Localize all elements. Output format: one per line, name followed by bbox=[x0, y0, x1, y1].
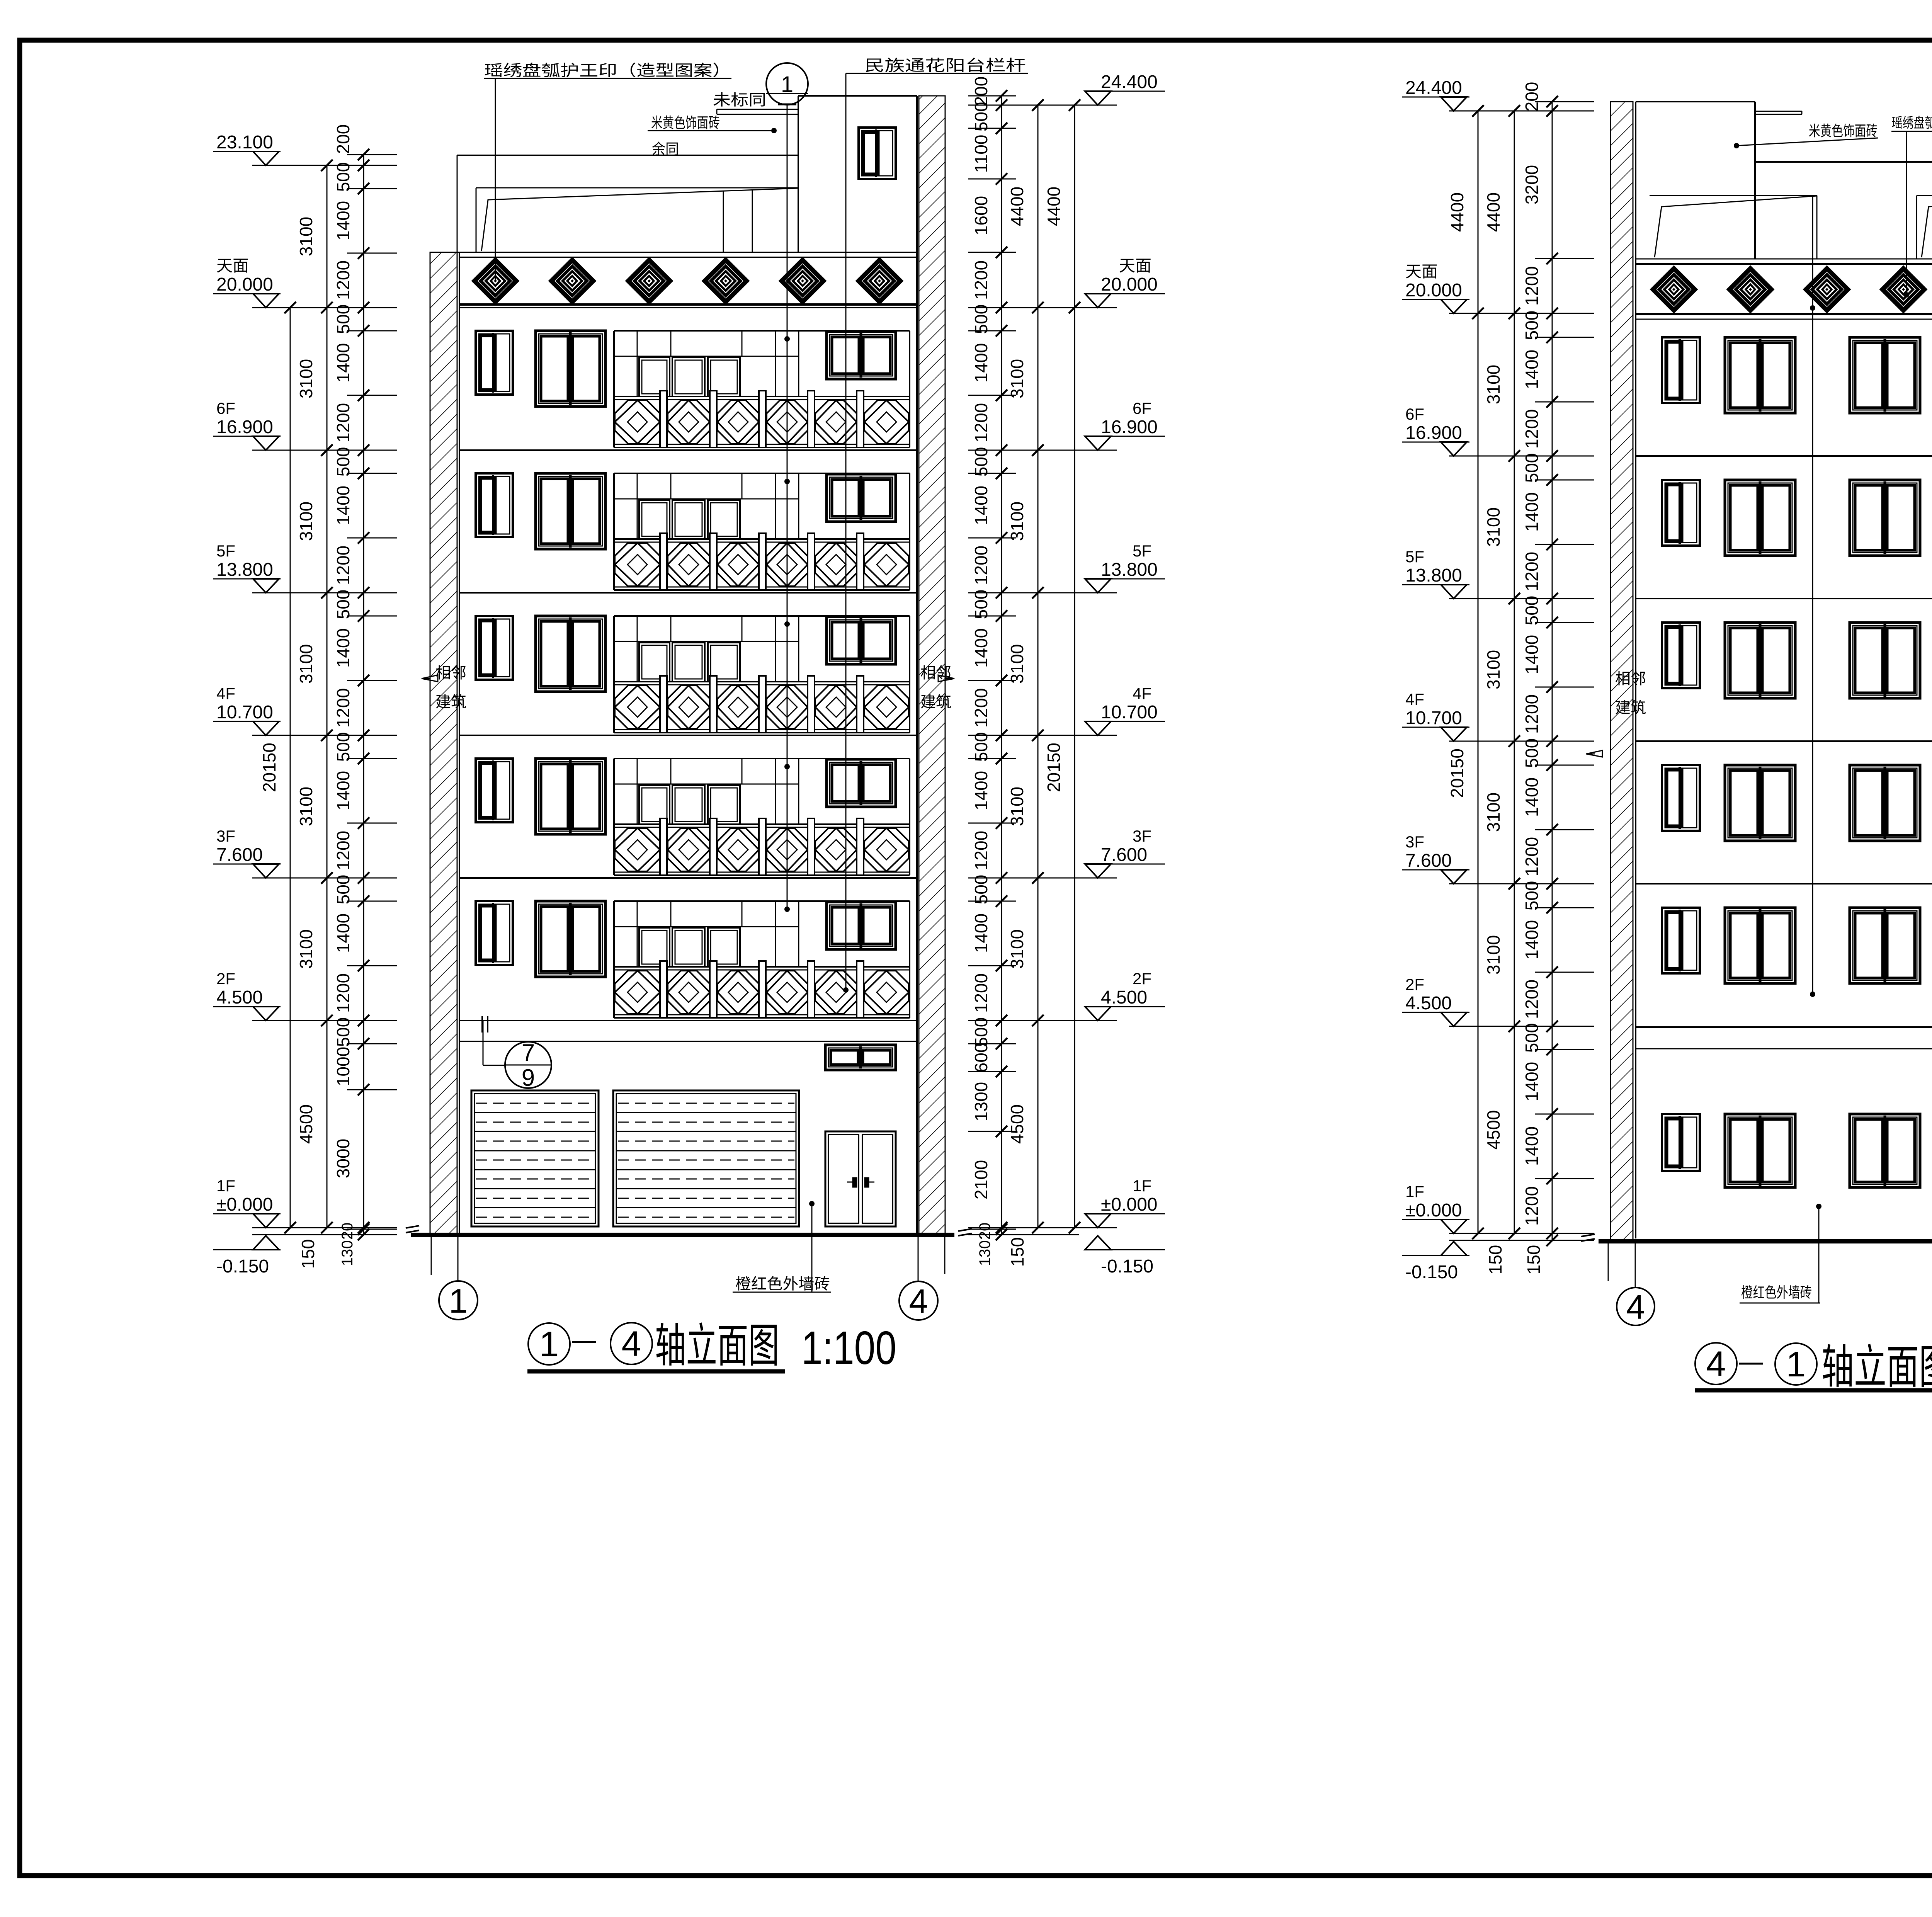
svg-text:4500: 4500 bbox=[1007, 1104, 1027, 1144]
svg-text:20.000: 20.000 bbox=[216, 274, 273, 295]
svg-text:1300: 1300 bbox=[971, 1082, 991, 1121]
svg-text:1200: 1200 bbox=[1522, 694, 1542, 734]
svg-text:1200: 1200 bbox=[1522, 409, 1542, 449]
svg-text:天面: 天面 bbox=[216, 257, 249, 275]
svg-text:150: 150 bbox=[298, 1239, 318, 1269]
svg-text:1400: 1400 bbox=[971, 628, 991, 668]
svg-text:130: 130 bbox=[339, 1240, 356, 1266]
svg-text:13.800: 13.800 bbox=[1101, 560, 1158, 580]
svg-text:1400: 1400 bbox=[1522, 350, 1542, 389]
svg-text:±0.000: ±0.000 bbox=[1405, 1200, 1462, 1221]
svg-text:±0.000: ±0.000 bbox=[216, 1194, 273, 1215]
svg-text:-0.150: -0.150 bbox=[1101, 1256, 1153, 1277]
svg-text:4: 4 bbox=[1626, 1288, 1645, 1326]
svg-text:500: 500 bbox=[971, 875, 991, 905]
svg-text:6F: 6F bbox=[216, 399, 235, 417]
svg-text:2F: 2F bbox=[216, 970, 235, 988]
svg-text:500: 500 bbox=[971, 732, 991, 762]
svg-text:橙红色外墙砖: 橙红色外墙砖 bbox=[1741, 1285, 1812, 1301]
svg-text:3100: 3100 bbox=[296, 644, 316, 684]
svg-text:米黄色饰面砖: 米黄色饰面砖 bbox=[651, 115, 720, 131]
svg-text:4.500: 4.500 bbox=[1101, 987, 1147, 1008]
svg-text:1200: 1200 bbox=[1522, 1186, 1542, 1226]
svg-text:1400: 1400 bbox=[333, 913, 353, 953]
svg-text:3100: 3100 bbox=[296, 929, 316, 969]
svg-text:2100: 2100 bbox=[971, 1160, 991, 1199]
svg-text:1200: 1200 bbox=[1522, 266, 1542, 306]
svg-text:建筑: 建筑 bbox=[1615, 699, 1646, 716]
svg-text:500: 500 bbox=[333, 447, 353, 477]
svg-text:500: 500 bbox=[333, 304, 353, 334]
svg-text:500: 500 bbox=[1522, 1023, 1542, 1053]
svg-text:200: 200 bbox=[333, 124, 353, 154]
svg-text:1400: 1400 bbox=[1522, 920, 1542, 959]
svg-text:3100: 3100 bbox=[1483, 935, 1503, 975]
svg-text:1200: 1200 bbox=[333, 688, 353, 728]
svg-text:4400: 4400 bbox=[1044, 187, 1064, 226]
svg-text:1: 1 bbox=[539, 1325, 559, 1364]
svg-text:3100: 3100 bbox=[1007, 929, 1027, 969]
svg-text:4.500: 4.500 bbox=[1405, 993, 1452, 1014]
svg-text:1: 1 bbox=[1786, 1345, 1806, 1384]
svg-text:3100: 3100 bbox=[1007, 787, 1027, 826]
svg-text:1400: 1400 bbox=[333, 343, 353, 383]
svg-text:1400: 1400 bbox=[971, 343, 991, 383]
svg-text:4500: 4500 bbox=[1483, 1110, 1503, 1150]
svg-text:4: 4 bbox=[1706, 1344, 1726, 1384]
svg-text:200: 200 bbox=[971, 77, 991, 106]
svg-text:1200: 1200 bbox=[333, 403, 353, 442]
svg-text:1F: 1F bbox=[1133, 1177, 1151, 1195]
svg-text:瑶绣盘瓠护王印（造型图案）: 瑶绣盘瓠护王印（造型图案） bbox=[484, 62, 731, 79]
svg-text:米黄色饰面砖: 米黄色饰面砖 bbox=[1809, 123, 1878, 139]
svg-text:3200: 3200 bbox=[1522, 165, 1542, 204]
svg-text:1F: 1F bbox=[216, 1177, 235, 1195]
svg-text:24.400: 24.400 bbox=[1101, 72, 1158, 92]
svg-text:200: 200 bbox=[1522, 82, 1542, 112]
svg-text:16.900: 16.900 bbox=[1101, 417, 1158, 437]
svg-text:1400: 1400 bbox=[1522, 1062, 1542, 1101]
svg-text:1400: 1400 bbox=[971, 913, 991, 953]
svg-text:3100: 3100 bbox=[1483, 650, 1503, 689]
svg-text:7.600: 7.600 bbox=[1405, 850, 1452, 871]
svg-text:500: 500 bbox=[1522, 596, 1542, 626]
svg-text:7.600: 7.600 bbox=[1101, 845, 1147, 865]
svg-text:20: 20 bbox=[339, 1223, 356, 1240]
svg-text:±0.000: ±0.000 bbox=[1101, 1194, 1157, 1215]
svg-text:3100: 3100 bbox=[296, 359, 316, 398]
svg-text:1100: 1100 bbox=[971, 135, 991, 173]
svg-text:13.800: 13.800 bbox=[1405, 565, 1462, 586]
svg-text:6F: 6F bbox=[1405, 405, 1424, 423]
svg-text:1200: 1200 bbox=[971, 973, 991, 1013]
svg-text:16.900: 16.900 bbox=[1405, 423, 1462, 443]
svg-text:3F: 3F bbox=[216, 827, 235, 845]
svg-text:3100: 3100 bbox=[1483, 365, 1503, 404]
svg-text:3F: 3F bbox=[1133, 827, 1151, 845]
svg-text:1F: 1F bbox=[1405, 1182, 1424, 1201]
svg-text:5F: 5F bbox=[1405, 548, 1424, 566]
svg-text:4400: 4400 bbox=[1483, 192, 1503, 232]
svg-text:3100: 3100 bbox=[1483, 507, 1503, 547]
svg-text:民族通花阳台栏杆: 民族通花阳台栏杆 bbox=[864, 57, 1026, 74]
svg-text:1200: 1200 bbox=[971, 546, 991, 585]
svg-text:500: 500 bbox=[333, 162, 353, 192]
svg-text:1400: 1400 bbox=[333, 628, 353, 668]
svg-text:1400: 1400 bbox=[333, 486, 353, 525]
svg-text:相邻: 相邻 bbox=[435, 665, 466, 682]
svg-text:3100: 3100 bbox=[1007, 359, 1027, 398]
svg-text:余同: 余同 bbox=[652, 141, 679, 158]
svg-text:5F: 5F bbox=[216, 542, 235, 560]
svg-text:4500: 4500 bbox=[296, 1104, 316, 1144]
svg-text:5F: 5F bbox=[1133, 542, 1151, 560]
svg-text:20: 20 bbox=[976, 1223, 993, 1240]
svg-text:1200: 1200 bbox=[333, 546, 353, 585]
svg-text:1400: 1400 bbox=[333, 201, 353, 240]
svg-text:未标同: 未标同 bbox=[713, 92, 766, 109]
svg-text:1: 1 bbox=[449, 1282, 468, 1320]
svg-text:4: 4 bbox=[909, 1282, 928, 1320]
svg-text:橙红色外墙砖: 橙红色外墙砖 bbox=[735, 1276, 830, 1293]
svg-text:6F: 6F bbox=[1133, 399, 1151, 417]
svg-text:1200: 1200 bbox=[333, 973, 353, 1013]
svg-text:相邻: 相邻 bbox=[1615, 670, 1646, 687]
svg-text:1400: 1400 bbox=[971, 486, 991, 525]
svg-text:500: 500 bbox=[1522, 311, 1542, 340]
svg-text:3100: 3100 bbox=[1483, 793, 1503, 832]
svg-text:500: 500 bbox=[971, 1017, 991, 1047]
svg-text:150: 150 bbox=[1485, 1245, 1505, 1275]
svg-text:1:100: 1:100 bbox=[801, 1322, 896, 1374]
svg-text:500: 500 bbox=[971, 590, 991, 619]
svg-text:500: 500 bbox=[971, 304, 991, 334]
svg-text:4: 4 bbox=[621, 1324, 641, 1364]
svg-text:4400: 4400 bbox=[1007, 187, 1027, 226]
svg-text:10.700: 10.700 bbox=[216, 702, 273, 723]
svg-text:20.000: 20.000 bbox=[1405, 280, 1462, 301]
svg-text:4F: 4F bbox=[1133, 684, 1151, 703]
svg-text:1: 1 bbox=[781, 72, 793, 97]
svg-text:-0.150: -0.150 bbox=[1405, 1262, 1458, 1283]
svg-text:1200: 1200 bbox=[971, 688, 991, 728]
svg-text:600: 600 bbox=[971, 1043, 991, 1073]
svg-text:500: 500 bbox=[1522, 738, 1542, 768]
svg-text:20150: 20150 bbox=[259, 743, 279, 792]
svg-text:3000: 3000 bbox=[333, 1139, 353, 1178]
svg-text:500: 500 bbox=[333, 1017, 353, 1047]
svg-text:天面: 天面 bbox=[1119, 257, 1151, 275]
svg-text:4.500: 4.500 bbox=[216, 987, 263, 1008]
svg-text:500: 500 bbox=[1522, 881, 1542, 911]
svg-text:1400: 1400 bbox=[1522, 777, 1542, 817]
svg-text:500: 500 bbox=[333, 732, 353, 762]
svg-text:1200: 1200 bbox=[971, 831, 991, 870]
svg-text:轴立面图: 轴立面图 bbox=[655, 1320, 779, 1372]
svg-text:16.900: 16.900 bbox=[216, 417, 273, 437]
svg-text:1200: 1200 bbox=[333, 831, 353, 870]
svg-text:7.600: 7.600 bbox=[216, 845, 263, 865]
svg-text:1400: 1400 bbox=[333, 771, 353, 810]
svg-text:3100: 3100 bbox=[296, 217, 316, 256]
svg-text:500: 500 bbox=[971, 102, 991, 132]
svg-text:建筑: 建筑 bbox=[920, 694, 951, 711]
svg-text:-0.150: -0.150 bbox=[216, 1256, 269, 1277]
svg-text:1200: 1200 bbox=[1522, 980, 1542, 1019]
svg-text:1200: 1200 bbox=[971, 403, 991, 442]
svg-text:500: 500 bbox=[333, 590, 353, 619]
svg-text:20.000: 20.000 bbox=[1101, 274, 1158, 295]
svg-text:轴立面图: 轴立面图 bbox=[1821, 1341, 1932, 1393]
svg-text:建筑: 建筑 bbox=[435, 694, 466, 711]
svg-text:天面: 天面 bbox=[1405, 262, 1438, 281]
svg-text:3100: 3100 bbox=[296, 502, 316, 541]
svg-text:7: 7 bbox=[522, 1039, 535, 1066]
svg-text:24.400: 24.400 bbox=[1405, 78, 1462, 98]
svg-text:3100: 3100 bbox=[1007, 502, 1027, 541]
svg-text:20150: 20150 bbox=[1044, 743, 1064, 792]
svg-text:500: 500 bbox=[971, 447, 991, 477]
svg-text:1400: 1400 bbox=[1522, 492, 1542, 532]
svg-text:500: 500 bbox=[333, 875, 353, 905]
svg-text:9: 9 bbox=[522, 1065, 535, 1091]
svg-text:1400: 1400 bbox=[1522, 635, 1542, 674]
svg-text:150: 150 bbox=[1007, 1237, 1027, 1267]
svg-text:10.700: 10.700 bbox=[1101, 702, 1158, 723]
svg-text:3F: 3F bbox=[1405, 833, 1424, 851]
svg-text:1400: 1400 bbox=[971, 771, 991, 810]
svg-text:20150: 20150 bbox=[1447, 748, 1467, 798]
svg-text:2F: 2F bbox=[1133, 970, 1151, 988]
svg-text:1200: 1200 bbox=[971, 260, 991, 300]
svg-text:1400: 1400 bbox=[1522, 1126, 1542, 1166]
svg-text:4400: 4400 bbox=[1447, 192, 1467, 232]
svg-text:1600: 1600 bbox=[971, 196, 991, 235]
svg-text:4F: 4F bbox=[1405, 690, 1424, 708]
svg-text:10.700: 10.700 bbox=[1405, 708, 1462, 728]
svg-text:1000: 1000 bbox=[333, 1047, 353, 1086]
svg-text:13.800: 13.800 bbox=[216, 560, 273, 580]
svg-text:瑶绣盘瓠护王印（造型图案）: 瑶绣盘瓠护王印（造型图案） bbox=[1891, 115, 1932, 131]
svg-text:1200: 1200 bbox=[1522, 837, 1542, 876]
svg-text:500: 500 bbox=[1522, 453, 1542, 483]
svg-text:3100: 3100 bbox=[296, 787, 316, 826]
svg-text:23.100: 23.100 bbox=[216, 132, 273, 153]
svg-text:1200: 1200 bbox=[1522, 552, 1542, 591]
svg-text:1200: 1200 bbox=[333, 260, 353, 300]
svg-text:130: 130 bbox=[976, 1240, 993, 1266]
svg-text:3100: 3100 bbox=[1007, 644, 1027, 684]
svg-text:4F: 4F bbox=[216, 684, 235, 703]
svg-text:150: 150 bbox=[1524, 1245, 1544, 1275]
svg-text:2F: 2F bbox=[1405, 975, 1424, 993]
